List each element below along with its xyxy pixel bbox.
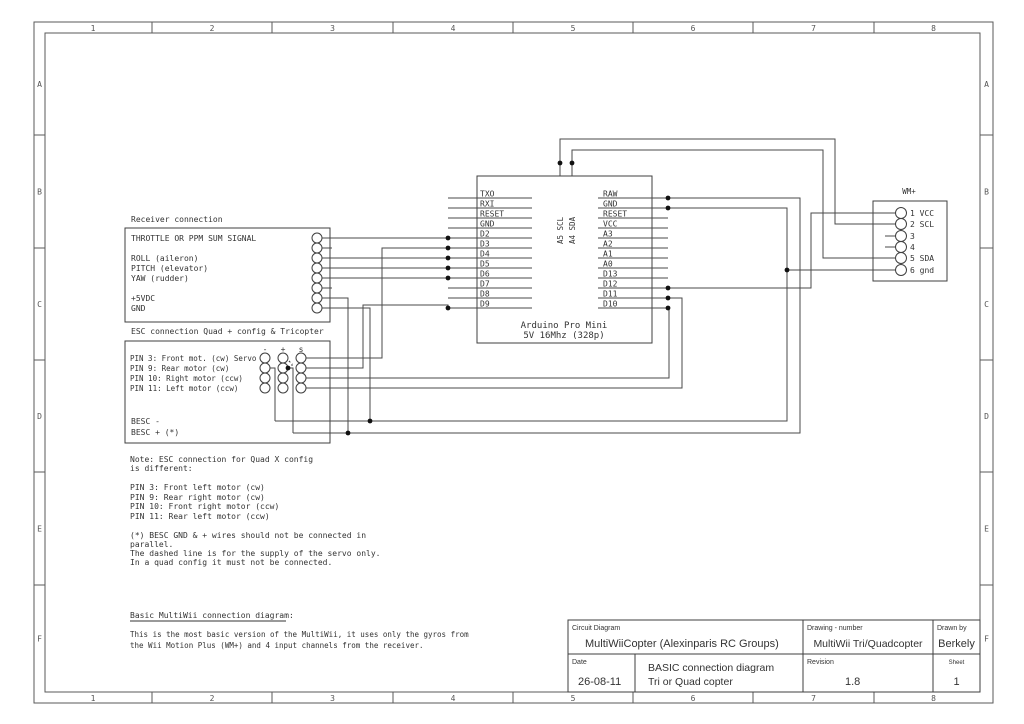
note-line: is different:	[130, 464, 193, 473]
title-block-field-label: Date	[572, 659, 587, 666]
junction-dot	[446, 306, 451, 311]
grid-row-label: C	[37, 300, 42, 309]
junction-dot	[666, 296, 671, 301]
arduino-left-pin-label: D2	[480, 230, 490, 239]
esc-title: ESC connection Quad + config & Tricopter	[131, 327, 324, 336]
grid-row-label: F	[984, 635, 989, 644]
wire	[293, 198, 800, 433]
junction-dot	[446, 236, 451, 241]
arduino-right-pin-label: D12	[603, 280, 618, 289]
arduino-left-pin-label: D9	[480, 300, 490, 309]
grid-col-label: 5	[571, 694, 576, 703]
grid-row-label: E	[984, 525, 989, 534]
receiver-pin-label: GND	[131, 304, 146, 313]
project-title: MultiWiiCopter (Alexinparis RC Groups)	[585, 638, 779, 650]
junction-dot	[446, 266, 451, 271]
junction-dot	[446, 256, 451, 261]
arduino-caption: 5V 16Mhz (328p)	[523, 331, 604, 341]
wire	[306, 248, 477, 358]
arduino-right-pin-label: RAW	[603, 190, 618, 199]
wire	[270, 368, 275, 421]
arduino-left-pin-label: RXI	[480, 200, 495, 209]
revision-value: 1.8	[845, 676, 860, 688]
arduino-caption: Arduino Pro Mini	[521, 321, 608, 331]
esc-row-label: PIN 3: Front mot. (cw) Servo	[130, 354, 257, 363]
grid-row-label: C	[984, 300, 989, 309]
arduino-right-pin-label: A0	[603, 260, 613, 269]
esc-pin-circle	[260, 383, 270, 393]
schematic-page: 1122334455667788AABBCCDDEEFFReceiver con…	[0, 0, 1024, 724]
note-line: The dashed line is for the supply of the…	[130, 549, 380, 558]
wm-pin-circle	[896, 253, 907, 264]
receiver-pin-circle	[312, 283, 322, 293]
junction-dot	[286, 366, 291, 371]
grid-row-label: A	[37, 80, 42, 89]
arduino-right-pin-label: VCC	[603, 220, 618, 229]
wm-pin-label: 6 gnd	[910, 266, 934, 275]
arduino-a4-label: A4 SDA	[568, 216, 577, 244]
date-value: 26-08-11	[578, 676, 621, 688]
arduino-right-pin-label: A1	[603, 250, 613, 259]
arduino-right-pin-label: A2	[603, 240, 613, 249]
sheet-value: 1	[953, 676, 959, 688]
wires	[270, 139, 895, 435]
grid-col-label: 4	[451, 694, 456, 703]
receiver-pin-circle	[312, 293, 322, 303]
receiver-block: Receiver connectionTHROTTLE OR PPM SUM S…	[125, 215, 332, 322]
junction-dot	[785, 268, 790, 273]
grid-row-label: A	[984, 80, 989, 89]
title-block-field-label: Circuit Diagram	[572, 625, 620, 632]
grid-row-label: D	[984, 412, 989, 421]
arduino-right-pin-label: RESET	[603, 210, 627, 219]
junction-dot	[446, 276, 451, 281]
grid-col-label: 3	[330, 24, 335, 33]
esc-row-label: PIN 11: Left motor (ccw)	[130, 384, 238, 393]
grid-col-label: 7	[811, 694, 816, 703]
drawn-by: Berkely	[938, 638, 975, 650]
wm-pin-label: 2 SCL	[910, 220, 934, 229]
title-block-border	[568, 620, 980, 692]
wm-pin-label: 5 SDA	[910, 254, 934, 263]
notes-text: Note: ESC connection for Quad X configis…	[130, 455, 380, 567]
arduino-left-pin-label: TXO	[480, 190, 495, 199]
wire	[572, 150, 895, 258]
arduino-left-pin-label: D4	[480, 250, 490, 259]
wire	[322, 298, 348, 433]
arduino-left-pin-label: D8	[480, 290, 490, 299]
wm-pin-circle	[896, 265, 907, 276]
wire	[288, 368, 293, 433]
junction-dot	[368, 419, 373, 424]
arduino-left-pin-label: D3	[480, 240, 490, 249]
esc-pin-circle	[296, 363, 306, 373]
drawing-number: MultiWii Tri/Quadcopter	[813, 638, 923, 650]
receiver-pin-circle	[312, 253, 322, 263]
description-line: BASIC connection diagram	[648, 662, 774, 674]
grid-col-label: 6	[691, 24, 696, 33]
junction-dot	[666, 286, 671, 291]
note-line: Note: ESC connection for Quad X config	[130, 455, 313, 464]
grid-col-label: 4	[451, 24, 456, 33]
note-line: PIN 3: Front left motor (cw)	[130, 483, 265, 492]
title-block-field-label: Sheet	[949, 660, 965, 666]
receiver-pin-circle	[312, 233, 322, 243]
esc-pin-circle	[296, 373, 306, 383]
grid-col-label: 8	[931, 24, 936, 33]
footer-note: Basic MultiWii connection diagram:This i…	[130, 611, 469, 650]
arduino-right-pin-label: A3	[603, 230, 613, 239]
junction-dot	[346, 431, 351, 436]
esc-pin-circle	[278, 373, 288, 383]
grid-row-label: B	[984, 188, 989, 197]
grid-row-label: F	[37, 635, 42, 644]
note-line: In a quad config it must not be connecte…	[130, 558, 332, 567]
grid-row-label: E	[37, 525, 42, 534]
junction-dot	[558, 161, 563, 166]
arduino-left-pin-label: GND	[480, 220, 495, 229]
wm-pin-label: 1 VCC	[910, 209, 934, 218]
arduino-left-pin-label: RESET	[480, 210, 504, 219]
note-line: PIN 10: Front right motor (ccw)	[130, 502, 279, 511]
wm-pin-circle	[896, 242, 907, 253]
grid-col-label: 2	[210, 24, 215, 33]
esc-pin-circle	[278, 383, 288, 393]
esc-pin-circle	[278, 353, 288, 363]
receiver-pin-circle	[312, 303, 322, 313]
grid-col-label: 7	[811, 24, 816, 33]
arduino-right-pin-label: D13	[603, 270, 618, 279]
esc-pin-circle	[260, 353, 270, 363]
arduino-right-pin-label: D11	[603, 290, 618, 299]
receiver-pin-label: THROTTLE OR PPM SUM SIGNAL	[131, 234, 256, 243]
esc-pin-circle	[260, 373, 270, 383]
grid-col-label: 6	[691, 694, 696, 703]
junction-dot	[570, 161, 575, 166]
besc-plus-label: BESC + (*)	[131, 428, 179, 437]
besc-minus-label: BESC -	[131, 417, 160, 426]
receiver-pin-circle	[312, 273, 322, 283]
wm-plus-block: WM+1 VCC2 SCL345 SDA6 gnd	[873, 187, 947, 281]
wire	[306, 305, 448, 368]
esc-pin-circle	[296, 383, 306, 393]
receiver-pin-label: PITCH (elevator)	[131, 264, 208, 273]
wm-title: WM+	[902, 187, 916, 196]
footer-line: the Wii Motion Plus (WM+) and 4 input ch…	[130, 641, 424, 650]
receiver-title: Receiver connection	[131, 215, 223, 224]
grid-col-label: 8	[931, 694, 936, 703]
note-line: PIN 9: Rear right motor (cw)	[130, 493, 265, 502]
footer-line: This is the most basic version of the Mu…	[130, 630, 469, 639]
title-block-field-label: Drawn by	[937, 625, 967, 632]
title-block-field-label: Drawing - number	[807, 625, 863, 632]
receiver-pin-label: YAW (rudder)	[131, 274, 189, 283]
grid-col-label: 5	[571, 24, 576, 33]
esc-block: ESC connection Quad + config & Tricopter…	[125, 327, 330, 443]
junction-dot	[446, 246, 451, 251]
arduino-right-pin-label: GND	[603, 200, 618, 209]
note-line: parallel.	[130, 540, 173, 549]
grid-col-label: 3	[330, 694, 335, 703]
junction-dot	[666, 206, 671, 211]
note-line: PIN 11: Rear left motor (ccw)	[130, 512, 270, 521]
arduino-right-pin-label: D10	[603, 300, 618, 309]
note-line: (*) BESC GND & + wires should not be con…	[130, 531, 366, 540]
receiver-pin-label: +5VDC	[131, 294, 155, 303]
esc-pin-circle	[260, 363, 270, 373]
grid-row-label: D	[37, 412, 42, 421]
receiver-pin-circle	[312, 243, 322, 253]
title-block-field-label: Revision	[807, 659, 834, 666]
wm-pin-circle	[896, 219, 907, 230]
wm-pin-circle	[896, 208, 907, 219]
junction-dot	[666, 306, 671, 311]
schematic-canvas: 1122334455667788AABBCCDDEEFFReceiver con…	[0, 0, 1024, 724]
receiver-pin-label: ROLL (aileron)	[131, 254, 198, 263]
receiver-pin-circle	[312, 263, 322, 273]
junction-dot	[666, 196, 671, 201]
arduino-left-pin-label: D6	[480, 270, 490, 279]
arduino-box	[477, 176, 652, 343]
esc-row-label: PIN 10: Right motor (ccw)	[130, 374, 243, 383]
arduino-left-pin-label: D7	[480, 280, 490, 289]
wm-pin-label: 3	[910, 232, 915, 241]
wm-pin-circle	[896, 231, 907, 242]
arduino-left-pin-label: D5	[480, 260, 490, 269]
esc-pin-circle	[296, 353, 306, 363]
description-line: Tri or Quad copter	[648, 676, 733, 688]
footer-heading: Basic MultiWii connection diagram:	[130, 611, 294, 620]
grid-col-label: 2	[210, 694, 215, 703]
arduino-a5-label: A5 SCL	[556, 216, 565, 244]
title-block: Circuit DiagramMultiWiiCopter (Alexinpar…	[568, 620, 980, 692]
wm-pin-label: 4	[910, 243, 915, 252]
grid-row-label: B	[37, 188, 42, 197]
grid-col-label: 1	[91, 694, 96, 703]
wire	[275, 208, 787, 421]
arduino-block: TXORAWRXIGNDRESETRESETGNDVCCD2A3D3A2D4A1…	[448, 163, 668, 343]
grid-col-label: 1	[91, 24, 96, 33]
esc-row-label: PIN 9: Rear motor (cw)	[130, 364, 229, 373]
